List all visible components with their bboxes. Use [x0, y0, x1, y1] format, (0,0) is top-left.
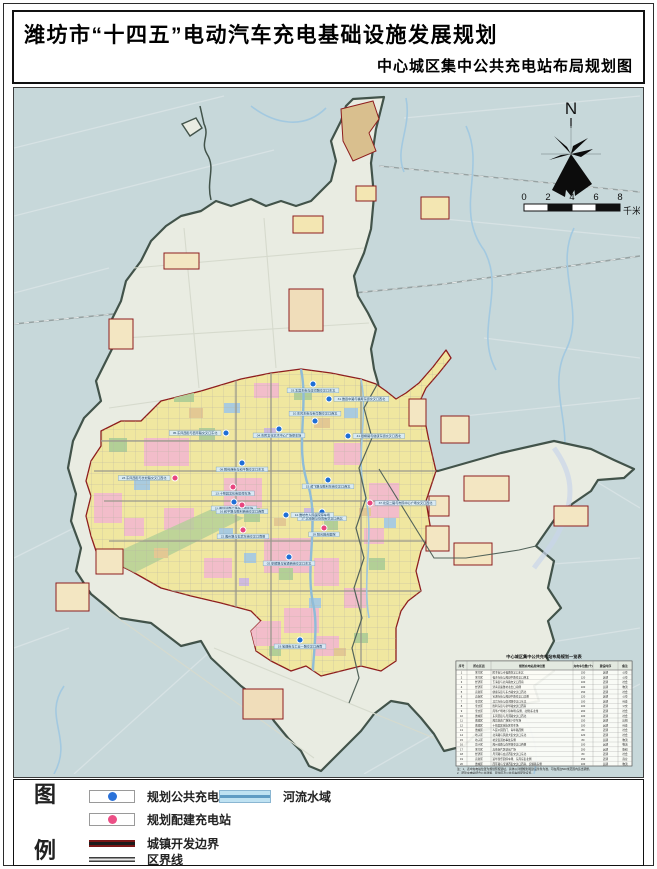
legend-item-builtin-station: 规划配建充电站 — [89, 812, 231, 826]
builtin-station-marker[interactable] — [239, 502, 245, 508]
table-cell: 经济区 — [475, 680, 483, 684]
table-header: 备注 — [621, 663, 628, 668]
public-station-marker[interactable] — [310, 381, 316, 387]
table-cell: 近期 — [603, 709, 609, 713]
table-cell: 十笏园文化街区停车场 — [493, 723, 519, 727]
table-cell: 胜利东街与新华路交叉口西南 — [493, 704, 527, 708]
station-table: 中心城区集中公共充电站布局规划一览表序号所在区县规划充电站具体位置充电车位数(个… — [456, 653, 632, 774]
table-cell: 物流 — [622, 738, 628, 742]
table-cell: 150 — [581, 671, 586, 675]
svg-text:8: 8 — [617, 192, 622, 203]
table-cell: 商业 — [622, 757, 628, 761]
station-37[interactable]: 37.北宫二路与市民中心广场交叉口西北 — [367, 500, 436, 506]
table-cell: 近期 — [603, 757, 609, 761]
table-title: 中心城区集中公共充电站布局规划一览表 — [506, 653, 582, 660]
table-cell: 公交 — [622, 695, 628, 699]
table-cell: 经济区 — [475, 752, 483, 756]
station-label: 33.北宫东街与虞河路交叉口东北 — [291, 388, 336, 393]
table-cell: 近期 — [603, 704, 609, 708]
legend-heading-top: 图 — [34, 784, 60, 806]
svg-text:千米: 千米 — [623, 205, 640, 216]
table-cell: 近期 — [603, 671, 609, 675]
table-cell: 出租 — [622, 719, 628, 723]
table-cell: 100 — [581, 680, 586, 684]
station-label: 19.宝通街与工业一路交叉口西南 — [278, 644, 323, 649]
table-cell: 物流 — [622, 685, 628, 689]
page-subtitle: 中心城区集中公共充电站布局规划图 — [377, 55, 633, 76]
table-cell: 坊子区 — [475, 738, 483, 742]
table-cell: 月河路与玄武西街交叉口东北 — [493, 752, 527, 756]
district-line-symbol — [89, 857, 135, 862]
page-title: 潍坊市“十四五”电动汽车充电基础设施发展规划 — [24, 19, 498, 49]
svg-text:N: N — [565, 99, 577, 118]
table-cell: 远期 — [603, 747, 609, 751]
public-station-marker[interactable] — [325, 477, 331, 483]
station-label: 10.东风东街与新华路交叉口西北 — [293, 411, 338, 416]
station-label: 41.银枫路与健康东街交叉口西北 — [357, 433, 402, 438]
table-cell: 东风西街与月河路交叉口西北 — [493, 714, 527, 718]
station-label: 05.东风西街与西环路交叉口东北 — [173, 430, 218, 435]
station-label: 16.和平路与胜利西街交叉口西南 — [220, 509, 265, 514]
table-cell: 高新区 — [475, 690, 483, 694]
planning-map[interactable]: 33.北宫东街与虞河路交叉口东北31.潍县中路与福寿东街交叉口西北10.东风东街… — [14, 88, 640, 774]
table-cell: 120 — [581, 695, 586, 699]
table-cell: 社会 — [622, 699, 628, 703]
table-header: 充电车位数(个) — [573, 663, 592, 668]
table-cell: 近期 — [603, 719, 609, 723]
table-cell: 近期 — [603, 752, 609, 756]
table-cell: 近期 — [603, 675, 609, 679]
table-cell: 潍城区 — [475, 723, 483, 727]
table-cell: 近期 — [603, 690, 609, 694]
public-station-marker[interactable] — [276, 426, 282, 432]
public-station-marker[interactable] — [297, 637, 303, 643]
legend: 图 例 规划公共充电站 河流水域 规划配建充电站 城镇开发边界 区界线 — [13, 779, 644, 866]
station-label: 22.潍州路与玄武东街交叉口南侧 — [221, 534, 266, 539]
title-block: 潍坊市“十四五”电动汽车充电基础设施发展规划 中心城区集中公共充电站布局规划图 — [12, 10, 645, 84]
table-cell: 济青高速潍坊北出口南侧 — [493, 685, 522, 689]
table-cell: 120 — [581, 675, 586, 679]
table-cell: 民主街与幸福路交叉口东北 — [493, 671, 525, 675]
builtin-station-marker[interactable] — [172, 475, 178, 481]
table-cell: 近期 — [603, 714, 609, 718]
table-cell: 120 — [581, 733, 586, 737]
table-cell: 远期 — [603, 738, 609, 742]
svg-text:2: 2 — [545, 192, 550, 203]
legend-heading: 图 例 — [34, 784, 60, 862]
public-station-marker[interactable] — [283, 512, 289, 518]
table-cell: 社会 — [622, 733, 628, 737]
table-cell: 坊子区 — [475, 743, 483, 747]
table-cell: 社会 — [622, 723, 628, 727]
table-cell: 潍城区 — [475, 714, 483, 718]
table-cell: 高铁新片区站前广场 — [493, 747, 517, 751]
table-cell: 100 — [581, 699, 586, 703]
builtin-station-marker[interactable] — [367, 500, 373, 506]
legend-label: 区界线 — [147, 851, 183, 868]
table-cell: 远期 — [603, 743, 609, 747]
table-cell: 坊安街道办事处东侧 — [493, 738, 517, 742]
public-station-dot-icon — [108, 792, 117, 801]
table-cell: 富华游乐园停车场、东风东街北侧 — [493, 757, 532, 761]
water-symbol — [219, 790, 271, 803]
table-header: 序号 — [459, 663, 465, 668]
table-cell: 社会 — [622, 690, 628, 694]
table-cell: 福寿东街与潍县中路交叉口西北 — [493, 675, 530, 679]
table-cell: 公交 — [622, 704, 628, 708]
table-cell: 150 — [581, 719, 586, 723]
table-cell: 社会 — [622, 709, 628, 713]
table-cell: 社会 — [622, 680, 628, 684]
table-cell: 远期 — [603, 762, 609, 766]
table-cell: 玉清街与北海路交叉口西南 — [493, 680, 525, 684]
table-cell: 寒亭区 — [475, 671, 483, 675]
legend-item-water: 河流水域 — [219, 789, 331, 803]
svg-text:6: 6 — [593, 192, 598, 203]
station-label: 15.鸢飞路与胜利东街交叉口西北 — [306, 484, 351, 489]
table-cell: 北宫东街与虞河路交叉口东北 — [493, 699, 527, 703]
station-label: 37.北宫二路与市民中心广场交叉口西北 — [379, 500, 434, 505]
public-station-marker[interactable] — [239, 460, 245, 466]
station-label: 04.市民文化艺术中心广场停车场 — [257, 433, 302, 438]
table-cell: 高新区 — [475, 695, 483, 699]
table-cell: 200 — [581, 747, 586, 751]
table-cell: 奎文区 — [475, 699, 483, 703]
builtin-station-symbol — [89, 813, 135, 826]
builtin-station-marker[interactable] — [240, 527, 246, 533]
table-cell: 近期 — [603, 680, 609, 684]
table-cell: 潍坊站南广场地下停车场 — [493, 719, 522, 723]
public-station-marker[interactable] — [345, 433, 351, 439]
urban-boundary-symbol — [89, 840, 135, 847]
table-header: 所在区县 — [473, 663, 485, 668]
svg-text:4: 4 — [569, 192, 574, 203]
legend-label: 河流水域 — [283, 788, 331, 805]
table-cell: 物流 — [622, 743, 628, 747]
table-cell: 社会 — [622, 752, 628, 756]
public-station-symbol — [89, 790, 135, 803]
station-31[interactable]: 31.潍县中路与福寿东街交叉口西北 — [326, 396, 389, 402]
table-cell: 100 — [581, 685, 586, 689]
table-cell: 潍城区 — [475, 719, 483, 723]
station-23[interactable]: 23.东风西街与长松路交叉口西北 — [118, 475, 178, 481]
public-station-marker[interactable] — [286, 554, 292, 560]
table-cell: 近期 — [603, 699, 609, 703]
table-cell: 近期 — [603, 728, 609, 732]
table-cell: 远期 — [603, 723, 609, 727]
table-cell: 潍州南路与南环路交叉口西侧 — [493, 743, 527, 747]
table-cell: 200 — [581, 709, 586, 713]
plan-sheet: { "page": { "title": "潍坊市“十四五”电动汽车充电基础设施… — [0, 0, 657, 869]
table-cell: 近期 — [603, 695, 609, 699]
table-cell: 寒亭区 — [475, 675, 483, 679]
table-cell: 社会 — [622, 714, 628, 718]
table-cell: 潍城区 — [475, 762, 483, 766]
table-cell: 物流 — [622, 762, 628, 766]
table-cell: 公交 — [622, 675, 628, 679]
table-header: 建设时序 — [599, 663, 612, 668]
table-cell: 奎文区 — [475, 704, 483, 708]
table-cell: 150 — [581, 757, 586, 761]
station-label: 02.安顺路与宝通西街交叉口东北 — [267, 561, 312, 566]
public-station-marker[interactable] — [231, 499, 237, 505]
legend-heading-bottom: 例 — [34, 840, 60, 862]
svg-text:0: 0 — [521, 192, 526, 203]
table-cell: 健康东街与东方路交叉口西北 — [493, 690, 527, 694]
legend-item-public-station: 规划公共充电站 — [89, 789, 231, 803]
table-cell: 社会 — [622, 728, 628, 732]
table-cell: 近期 — [603, 733, 609, 737]
table-cell: 100 — [581, 704, 586, 708]
table-cell: 枢纽 — [622, 747, 628, 751]
public-station-marker[interactable] — [223, 430, 229, 436]
table-cell: 100 — [581, 762, 586, 766]
table-cell: 潍城区 — [475, 728, 483, 732]
table-cell: 风筝广场地下停车场(东侧、北侧)东北角 — [493, 709, 539, 713]
station-05[interactable]: 05.东风西街与西环路交叉口东北 — [169, 430, 229, 436]
table-cell: 100 — [581, 714, 586, 718]
station-label: 31.潍县中路与福寿东街交叉口西北 — [338, 396, 387, 401]
table-cell: 经济区 — [475, 685, 483, 689]
table-cell: 宝通东街与潍县中路交叉口北侧 — [493, 695, 530, 699]
table-cell: 150 — [581, 690, 586, 694]
station-label: 14.潍坊市人民医院停车场 — [295, 512, 330, 517]
builtin-station-marker[interactable] — [321, 525, 327, 531]
builtin-station-dot-icon — [108, 815, 117, 824]
station-41[interactable]: 41.银枫路与健康东街交叉口西北 — [345, 433, 405, 439]
public-station-marker[interactable] — [326, 396, 332, 402]
legend-item-district-line: 区界线 — [89, 852, 183, 866]
legend-label: 城镇开发边界 — [147, 835, 219, 852]
station-label: 23.东风西街与长松路交叉口西北 — [122, 475, 167, 480]
station-label: 39.阳光融合医院 — [313, 532, 336, 537]
table-cell: 奎文区 — [475, 709, 483, 713]
public-station-marker[interactable] — [312, 418, 318, 424]
table-cell: 100 — [581, 723, 586, 727]
table-note: 2、配建充电站结合公共建筑、居住区及公共停车场配建设置。 — [457, 771, 534, 774]
table-header: 规划充电站具体位置 — [519, 663, 545, 668]
legend-label: 规划配建充电站 — [147, 811, 231, 828]
station-label: 13.十笏园文化街区停车场 — [215, 491, 250, 496]
table-cell: 高新区 — [475, 757, 483, 761]
table-cell: 远期 — [603, 685, 609, 689]
builtin-station-marker[interactable] — [230, 484, 236, 490]
table-cell: 100 — [581, 743, 586, 747]
table-cell: 西环路与宝通西街交叉口西南、安顺路东侧 — [493, 762, 543, 766]
table-cell: 人民公园西门、青年路西侧 — [493, 728, 525, 732]
table-cell: 公交 — [622, 671, 628, 675]
station-label: 08.胜利西街与和平路交叉口东北 — [220, 467, 265, 472]
table-cell: 寒亭区 — [475, 747, 483, 751]
table-cell: 北海路与凤凰大街交叉口东北 — [493, 733, 527, 737]
legend-item-urban-boundary: 城镇开发边界 — [89, 836, 219, 850]
map-canvas[interactable]: 33.北宫东街与虞河路交叉口东北31.潍县中路与福寿东街交叉口西北10.东风东街… — [13, 87, 644, 778]
table-cell: 坊子区 — [475, 733, 483, 737]
